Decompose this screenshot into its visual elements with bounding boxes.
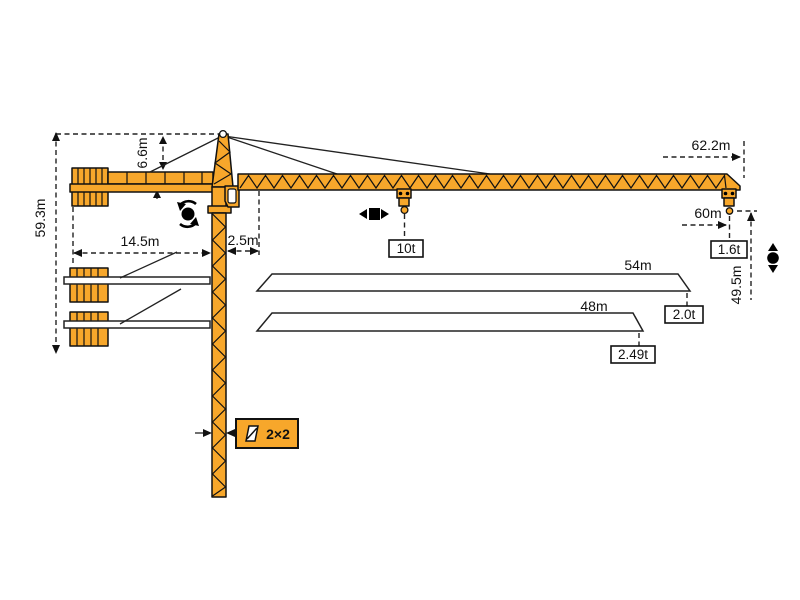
mast-section-icon: [246, 426, 258, 441]
dim-max-radius-label: 62.2m: [692, 137, 731, 153]
hoist-icon: [767, 243, 779, 273]
max-load-label: 10t: [397, 241, 416, 256]
mast-section-callout: 2×2: [195, 419, 298, 448]
jib-variant-48-load: 2.49t: [618, 347, 648, 362]
trolley-max-load: 10t: [389, 189, 423, 257]
trolley-tip-load: 1.6t: [711, 189, 757, 258]
counter-jib-beam: [70, 184, 213, 192]
counterweight-variant-1: [64, 252, 210, 302]
tip-load-label: 1.6t: [718, 242, 741, 257]
slewing-icon: [177, 201, 199, 227]
counter-jib-platform: [108, 172, 213, 184]
dim-hook-height-label: 49.5m: [728, 266, 744, 305]
dim-near-tip-radius-label: 60m: [694, 205, 721, 221]
jib-variant-54-length: 54m: [624, 257, 651, 273]
apex-pin: [220, 131, 227, 138]
dim-overall-height-label: 59.3m: [32, 199, 48, 238]
dim-near-tip-radius: 60m: [682, 205, 727, 229]
trolley-travel-icon: [359, 208, 389, 220]
jib-variant-48: 48m 2.49t: [257, 298, 655, 363]
crane-diagram-canvas: 59.3m 6.6m: [0, 0, 800, 600]
jib-variant-54-load: 2.0t: [673, 307, 696, 322]
crane-diagram: 59.3m 6.6m: [0, 0, 800, 600]
slewing-unit: [208, 186, 239, 213]
dim-tower-head-height-label: 6.6m: [134, 137, 150, 168]
jib-variant-48-length: 48m: [580, 298, 607, 314]
dim-counter-jib-radius-label: 14.5m: [121, 233, 160, 249]
dim-max-radius: 62.2m: [663, 137, 744, 178]
cab-window: [228, 189, 236, 203]
mast-section-label: 2×2: [266, 426, 290, 442]
dim-jib-root-offset-label: 2.5m: [227, 232, 258, 248]
tower-mast: [212, 213, 226, 497]
main-jib: [238, 174, 740, 190]
